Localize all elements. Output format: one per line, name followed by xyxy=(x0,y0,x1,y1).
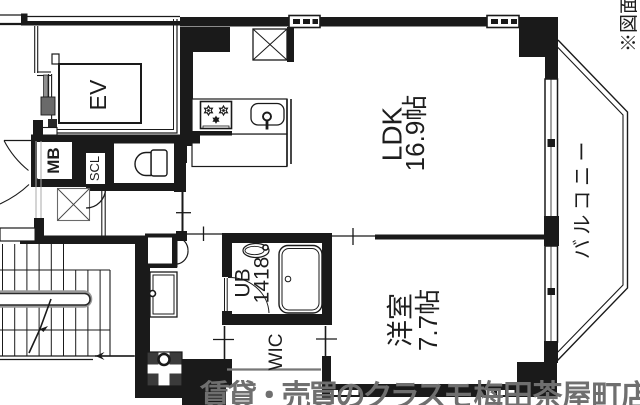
svg-text:梅田茶屋町店: 梅田茶屋町店 xyxy=(474,380,640,405)
svg-text:SCL: SCL xyxy=(87,156,102,181)
svg-text:7.7帖: 7.7帖 xyxy=(413,289,443,351)
svg-text:バルコニー: バルコニー xyxy=(572,137,594,259)
svg-text:※図面と: ※図面と xyxy=(619,0,640,52)
svg-text:MB: MB xyxy=(44,147,63,173)
svg-text:EV: EV xyxy=(85,79,111,110)
svg-text:16.9帖: 16.9帖 xyxy=(400,95,430,172)
svg-text:賃貸・売買のクラスモ: 賃貸・売買のクラスモ xyxy=(199,379,471,405)
svg-text:1418: 1418 xyxy=(251,257,274,304)
svg-text:洋室: 洋室 xyxy=(386,293,416,347)
svg-text:WIC: WIC xyxy=(266,334,287,371)
